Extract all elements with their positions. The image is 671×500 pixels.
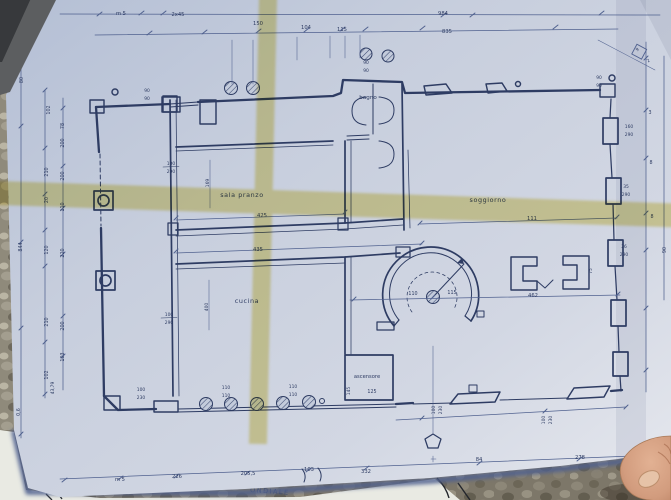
dim-right-75: 75 (588, 268, 594, 274)
dim-bottom-205: 205,5 (241, 471, 256, 477)
frac-b3-bot: 230 (548, 416, 554, 425)
frac-l2-bot: 290 (165, 320, 174, 326)
frac-b4-bot: 230 (438, 406, 444, 415)
frac-l1-top: 100 (167, 161, 176, 167)
dim-left-4379: 43,79 (50, 382, 56, 395)
frac-b0-top: 100 (137, 387, 146, 393)
frac-b2-bot: 110 (289, 392, 298, 398)
dim-bottom-332: 332 (361, 469, 371, 475)
frac-l1-bot: 290 (167, 169, 176, 175)
dim-right-8a: 8 (649, 160, 652, 166)
room-label-bagno: bagno (359, 95, 377, 101)
dim-top-2x45: 2x45 (172, 12, 185, 18)
frac-r3-top: 26 (621, 244, 627, 250)
dim-int-110: 110 (408, 291, 417, 297)
dim-bottom-226: 226 (172, 474, 182, 480)
dim-left-200b: 200 (60, 171, 66, 180)
frac-r1-bot: 290 (625, 132, 634, 138)
dim-bottom-103: 103 (304, 467, 314, 473)
frac-b4-top: 100 (431, 406, 437, 415)
frac-r2-top: 35 (623, 184, 629, 190)
dim-left-200a: 200 (60, 138, 66, 147)
dim-left-210a: 210 (44, 167, 50, 176)
frac-t3-bot: 90 (596, 83, 602, 89)
dim-bottom-m5: m 5 (115, 477, 125, 483)
dim-bottom-84: 84 (476, 457, 483, 463)
dim-left-844: 844 (18, 242, 24, 251)
dim-int-400: 400 (204, 303, 210, 312)
frac-b3-top: 100 (541, 416, 547, 425)
dim-left-103: 103 (60, 352, 66, 361)
frac-b1-bot: 110 (222, 393, 231, 399)
dim-left-102b: 102 (44, 370, 50, 379)
frac-b0-bot: 230 (137, 395, 146, 401)
dim-left-200c: 200 (60, 321, 66, 330)
dim-top-984: 984 (438, 11, 449, 17)
frac-t1-top: 90 (144, 88, 150, 94)
blueprint-photo-svg: ONDIALE (0, 0, 671, 500)
dim-bottom-278: 278 (575, 455, 585, 461)
room-label-ascensore: ascensore (354, 374, 380, 380)
dim-right-90: 90 (662, 247, 668, 253)
frac-t3-top: 90 (596, 75, 602, 81)
dim-left-210b: 210 (44, 317, 50, 326)
frac-t2-top: 90 (363, 60, 369, 66)
photo-of-floor-plan: ONDIALE (0, 0, 671, 500)
blueprint-paper (6, 0, 671, 497)
frac-r2-bot: 290 (622, 192, 631, 198)
dim-right-3: 3 (648, 110, 651, 116)
dim-top-104: 104 (301, 25, 312, 31)
dim-left-120: 120 (44, 245, 50, 254)
dim-top-115: 115 (337, 27, 347, 33)
dim-left-80: 80 (19, 77, 25, 83)
dim-left-102a: 102 (46, 105, 52, 114)
dim-int-115: 115 (447, 290, 456, 296)
dim-left-220: 220 (60, 248, 66, 257)
frac-r3-bot: 290 (620, 252, 629, 258)
frac-b1-top: 110 (222, 385, 231, 391)
dim-left-06: 0,6 (16, 408, 22, 416)
frac-l2-top: 100 (165, 312, 174, 318)
dim-left-78: 78 (60, 123, 66, 129)
dim-int-462: 462 (528, 293, 538, 299)
frac-t1-bot: 90 (144, 96, 150, 102)
dim-int-169: 169 (205, 179, 211, 188)
dim-int-145: 145 (346, 387, 352, 396)
frac-r1-top: 160 (625, 124, 634, 130)
dim-int-125: 125 (367, 389, 376, 395)
frac-b2-top: 110 (289, 384, 298, 390)
dim-top-835: 835 (442, 29, 452, 35)
frac-t2-bot: 90 (363, 68, 369, 74)
dim-top-m5: m 5 (116, 11, 126, 17)
